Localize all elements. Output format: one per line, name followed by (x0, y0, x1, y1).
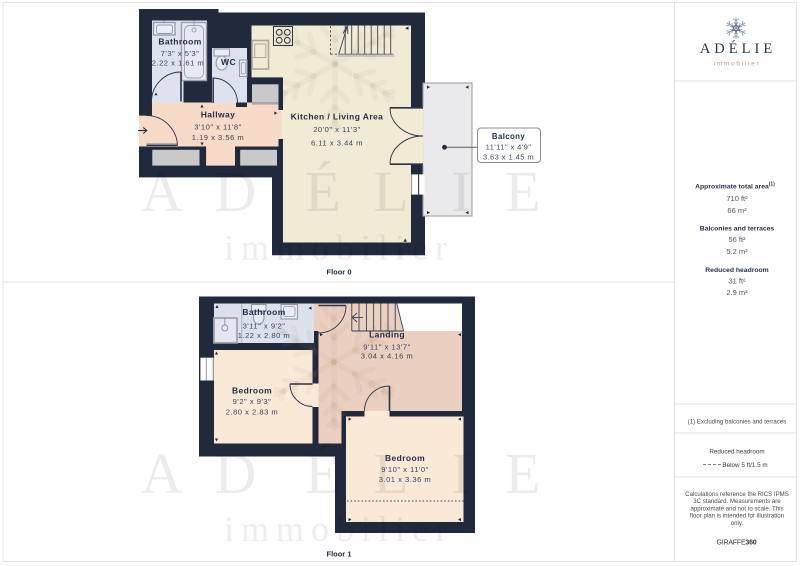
svg-text:É: É (305, 441, 340, 506)
svg-text:6.11 x 3.44 m: 6.11 x 3.44 m (311, 139, 363, 148)
svg-text:I: I (451, 159, 470, 224)
svg-text:L: L (373, 159, 408, 224)
svg-text:3'11" x 9'2": 3'11" x 9'2" (243, 322, 286, 331)
svg-text:GIRAFFE360: GIRAFFE360 (716, 540, 756, 547)
svg-text:ADÉLIE: ADÉLIE (700, 40, 776, 57)
svg-text:2.80 x 2.83 m: 2.80 x 2.83 m (226, 407, 279, 416)
svg-text:9'10" x 11'0": 9'10" x 11'0" (381, 465, 429, 474)
svg-text:Balcony: Balcony (492, 132, 525, 141)
svg-text:Balconies and terraces: Balconies and terraces (700, 226, 775, 233)
svg-text:Bedroom: Bedroom (385, 453, 425, 463)
svg-text:31 ft²: 31 ft² (728, 277, 746, 286)
svg-text:É: É (305, 159, 340, 224)
svg-text:Floor 0: Floor 0 (326, 268, 351, 277)
svg-text:only.: only. (731, 520, 744, 527)
svg-text:immobilier: immobilier (224, 228, 454, 268)
svg-text:immobilier: immobilier (714, 61, 761, 68)
svg-text:Approximate total area(1): Approximate total area(1) (695, 182, 775, 191)
svg-text:3.63 x 1.45 m: 3.63 x 1.45 m (483, 152, 534, 161)
svg-text:20'0" x 11'3": 20'0" x 11'3" (313, 125, 361, 134)
svg-text:A: A (141, 159, 183, 224)
svg-text:Bathroom: Bathroom (158, 37, 201, 47)
svg-text:A: A (141, 441, 183, 506)
svg-text:Calculations reference the RIC: Calculations reference the RICS IPMS (685, 491, 789, 498)
svg-text:Bedroom: Bedroom (232, 386, 272, 396)
svg-text:Hallway: Hallway (201, 110, 235, 120)
svg-text:Reduced headroom: Reduced headroom (705, 267, 768, 274)
svg-text:Floor 1: Floor 1 (326, 550, 351, 559)
svg-text:3'10" x 11'8": 3'10" x 11'8" (194, 123, 242, 132)
svg-text:Kitchen / Living Area: Kitchen / Living Area (291, 112, 384, 122)
svg-text:2.9 m²: 2.9 m² (726, 288, 748, 297)
svg-text:3C standard. Measurements are: 3C standard. Measurements are (693, 498, 781, 505)
svg-text:E: E (505, 441, 540, 506)
svg-text:3.04 x 4.16 m: 3.04 x 4.16 m (361, 352, 414, 361)
svg-text:9'2" x 9'3": 9'2" x 9'3" (233, 397, 272, 406)
svg-text:Landing: Landing (369, 330, 405, 340)
svg-text:710 ft²: 710 ft² (726, 194, 748, 203)
svg-text:Bathroom: Bathroom (242, 307, 285, 317)
svg-text:immobilier: immobilier (224, 509, 454, 549)
svg-text:2.22 x 1.61 m: 2.22 x 1.61 m (152, 58, 205, 67)
svg-text:D: D (215, 441, 257, 506)
svg-text:1.19 x 3.56 m: 1.19 x 3.56 m (192, 133, 245, 142)
svg-text:E: E (505, 159, 540, 224)
svg-text:Below 5 ft/1.5 m: Below 5 ft/1.5 m (722, 462, 767, 469)
svg-text:56 ft²: 56 ft² (728, 235, 746, 244)
svg-text:3.01 x 3.36 m: 3.01 x 3.36 m (379, 475, 432, 484)
svg-text:floor plan is intended for ill: floor plan is intended for illustration (690, 513, 784, 520)
svg-text:D: D (215, 159, 257, 224)
svg-text:1.22 x 2.80 m: 1.22 x 2.80 m (238, 331, 291, 340)
svg-text:approximate and not to scale.: approximate and not to scale. This (690, 505, 783, 512)
svg-text:66 m²: 66 m² (727, 206, 747, 215)
svg-text:11'11" x 4'9": 11'11" x 4'9" (486, 143, 532, 152)
svg-text:(1) Excluding balconies and te: (1) Excluding balconies and terraces (688, 419, 787, 426)
svg-text:I: I (451, 441, 470, 506)
svg-text:5.2 m²: 5.2 m² (726, 247, 748, 256)
svg-text:7'3" x 5'3": 7'3" x 5'3" (161, 49, 200, 58)
svg-text:Reduced headroom: Reduced headroom (709, 449, 764, 456)
svg-text:9'11" x 13'7": 9'11" x 13'7" (363, 343, 411, 352)
svg-text:WC: WC (221, 57, 236, 67)
